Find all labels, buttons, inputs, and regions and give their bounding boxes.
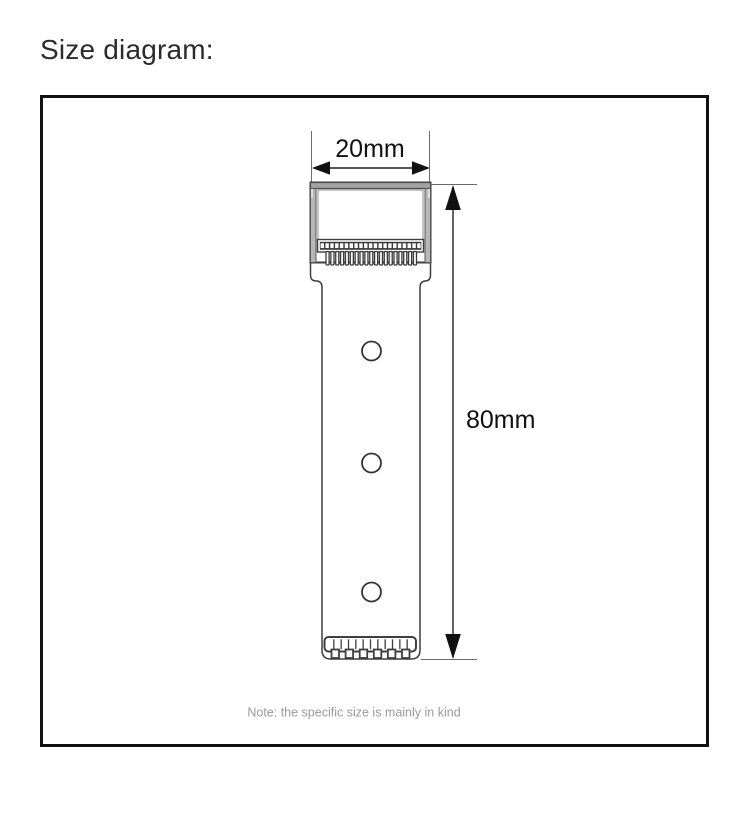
strip-slot (325, 243, 328, 248)
height-dimension: 80mm (421, 185, 535, 660)
stamp-head-inner-panel (318, 190, 423, 241)
height-arrowhead-bottom (445, 634, 461, 659)
needle-tooth (360, 252, 363, 266)
needle-tooth (394, 252, 397, 266)
strip-slot (354, 243, 357, 248)
needle-tooth (409, 252, 412, 266)
grip-tooth (346, 650, 354, 659)
grip-tooth (374, 650, 382, 659)
grip-tooth (402, 650, 410, 659)
strip-slot (417, 243, 420, 248)
needle-tooth (355, 252, 358, 266)
strip-slot (345, 243, 348, 248)
height-dimension-label: 80mm (466, 406, 535, 434)
strip-slot (383, 243, 386, 248)
needle-tooth (350, 252, 353, 266)
strip-slot (359, 243, 362, 248)
handle-hole (362, 454, 381, 473)
needle-tooth (399, 252, 402, 266)
needle-strip-slots (321, 243, 421, 248)
diagram-note: Note: the specific size is mainly in kin… (247, 706, 460, 720)
width-arrowhead-left (312, 161, 330, 175)
strip-slot (388, 243, 391, 248)
grip-tooth (360, 650, 368, 659)
needle-tooth (341, 252, 344, 266)
needle-tooth (389, 252, 392, 266)
needle-tooth (345, 252, 348, 266)
stamp-head-wall-right (425, 189, 431, 263)
width-arrowhead-right (412, 161, 430, 175)
handle-hole (362, 342, 381, 361)
stamp-head-top-bar (311, 183, 431, 189)
strip-slot (330, 243, 333, 248)
needle-tooth (331, 252, 334, 266)
strip-slot (369, 243, 372, 248)
needle-tooth (370, 252, 373, 266)
strip-slot (321, 243, 324, 248)
strip-slot (340, 243, 343, 248)
needle-tooth (365, 252, 368, 266)
stamp-head-wall-left (311, 189, 317, 263)
strip-slot (412, 243, 415, 248)
strip-slot (398, 243, 401, 248)
size-diagram-svg: 20mm (43, 98, 706, 744)
page-title: Size diagram: (40, 34, 214, 66)
strip-slot (335, 243, 338, 248)
strip-slot (364, 243, 367, 248)
width-dimension-label: 20mm (335, 135, 404, 163)
strip-slot (350, 243, 353, 248)
strip-slot (374, 243, 377, 248)
needle-tooth (413, 252, 416, 266)
needle-tooth (326, 252, 329, 266)
diagram-frame: 20mm (40, 95, 709, 747)
strip-slot (408, 243, 411, 248)
grip-tooth (388, 650, 396, 659)
strip-slot (379, 243, 382, 248)
needle-tooth (379, 252, 382, 266)
needle-tooth (336, 252, 339, 266)
stamp-object (311, 183, 431, 660)
strip-slot (393, 243, 396, 248)
grip-tooth (332, 650, 340, 659)
needle-tooth (404, 252, 407, 266)
strip-slot (403, 243, 406, 248)
needle-tooth (375, 252, 378, 266)
needle-tooth (384, 252, 387, 266)
handle-hole (362, 583, 381, 602)
height-arrowhead-top (445, 185, 461, 210)
